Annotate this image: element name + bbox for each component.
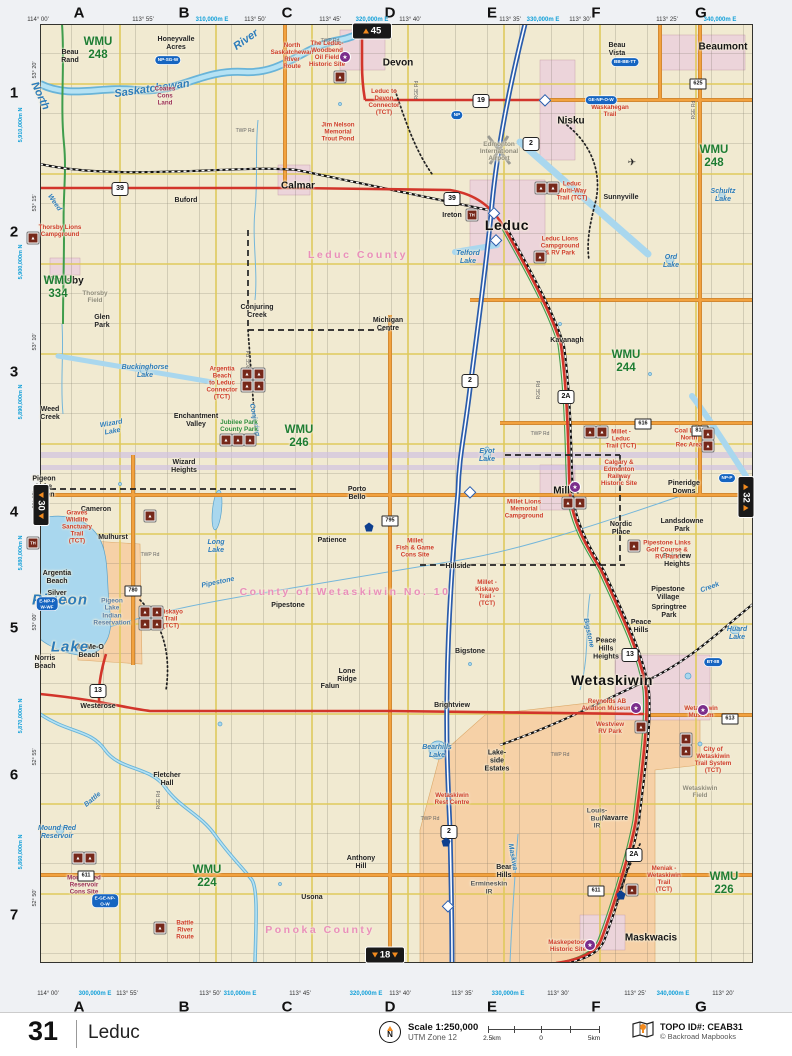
topo-id-block: TOPO ID#: CEAB31 © Backroad Mapbooks [660,1022,743,1041]
scale-tick [599,1026,600,1033]
scale-info: Scale 1:250,000 UTM Zone 12 [408,1022,478,1042]
adjacent-map-number: 32 [740,492,751,503]
map-canvas [40,24,753,963]
adjacent-arrow-icon [39,513,44,519]
top-margin [0,0,792,24]
adjacent-map-tab-bottom: 18 [366,948,404,963]
mapbook-page: Beau RandHoneyvalle AcresDevonNiskuBeau … [0,0,792,1056]
adjacent-map-number: 30 [35,500,46,511]
copyright: © Backroad Mapbooks [660,1032,743,1041]
north-arrow-icon: N [379,1021,401,1043]
bottom-margin [0,963,792,1012]
page-number: 31 [28,1016,58,1047]
right-margin [753,0,792,1012]
map-book-icon [632,1021,654,1044]
page-title: Leduc [88,1022,140,1044]
adjacent-arrow-icon [744,484,749,490]
bearhills-lake [429,741,447,759]
scale-right-label: 5km [588,1035,600,1042]
scale-label: Scale 1:250,000 [408,1022,478,1033]
scale-zero-label: 0 [539,1035,543,1042]
scale-bar-line [488,1029,600,1030]
scale-tick [570,1026,571,1033]
topo-id: TOPO ID#: CEAB31 [660,1022,743,1032]
adjacent-map-number: 45 [371,26,382,37]
adjacent-map-tab-top: 45 [353,24,391,39]
scale-left-label: 2.5km [483,1035,501,1042]
adjacent-map-tab-left: 30 [34,485,49,525]
utm-zone-label: UTM Zone 12 [408,1033,478,1042]
adjacent-arrow-icon [744,505,749,511]
footer-bar: 31 Leduc N Scale 1:250,000 UTM Zone 12 2… [0,1012,792,1056]
scale-bar: 2.5km 0 5km [488,1025,600,1043]
scale-tick [514,1026,515,1033]
adjacent-arrow-icon [363,29,369,34]
adjacent-arrow-icon [39,492,44,498]
adjacent-map-tab-right: 32 [739,477,754,517]
scale-tick [488,1026,489,1033]
scale-tick [541,1026,542,1033]
north-label: N [387,1031,393,1039]
adjacent-arrow-icon [392,953,398,958]
adjacent-arrow-icon [372,953,378,958]
divider [76,1020,77,1048]
adjacent-map-number: 18 [380,950,391,961]
